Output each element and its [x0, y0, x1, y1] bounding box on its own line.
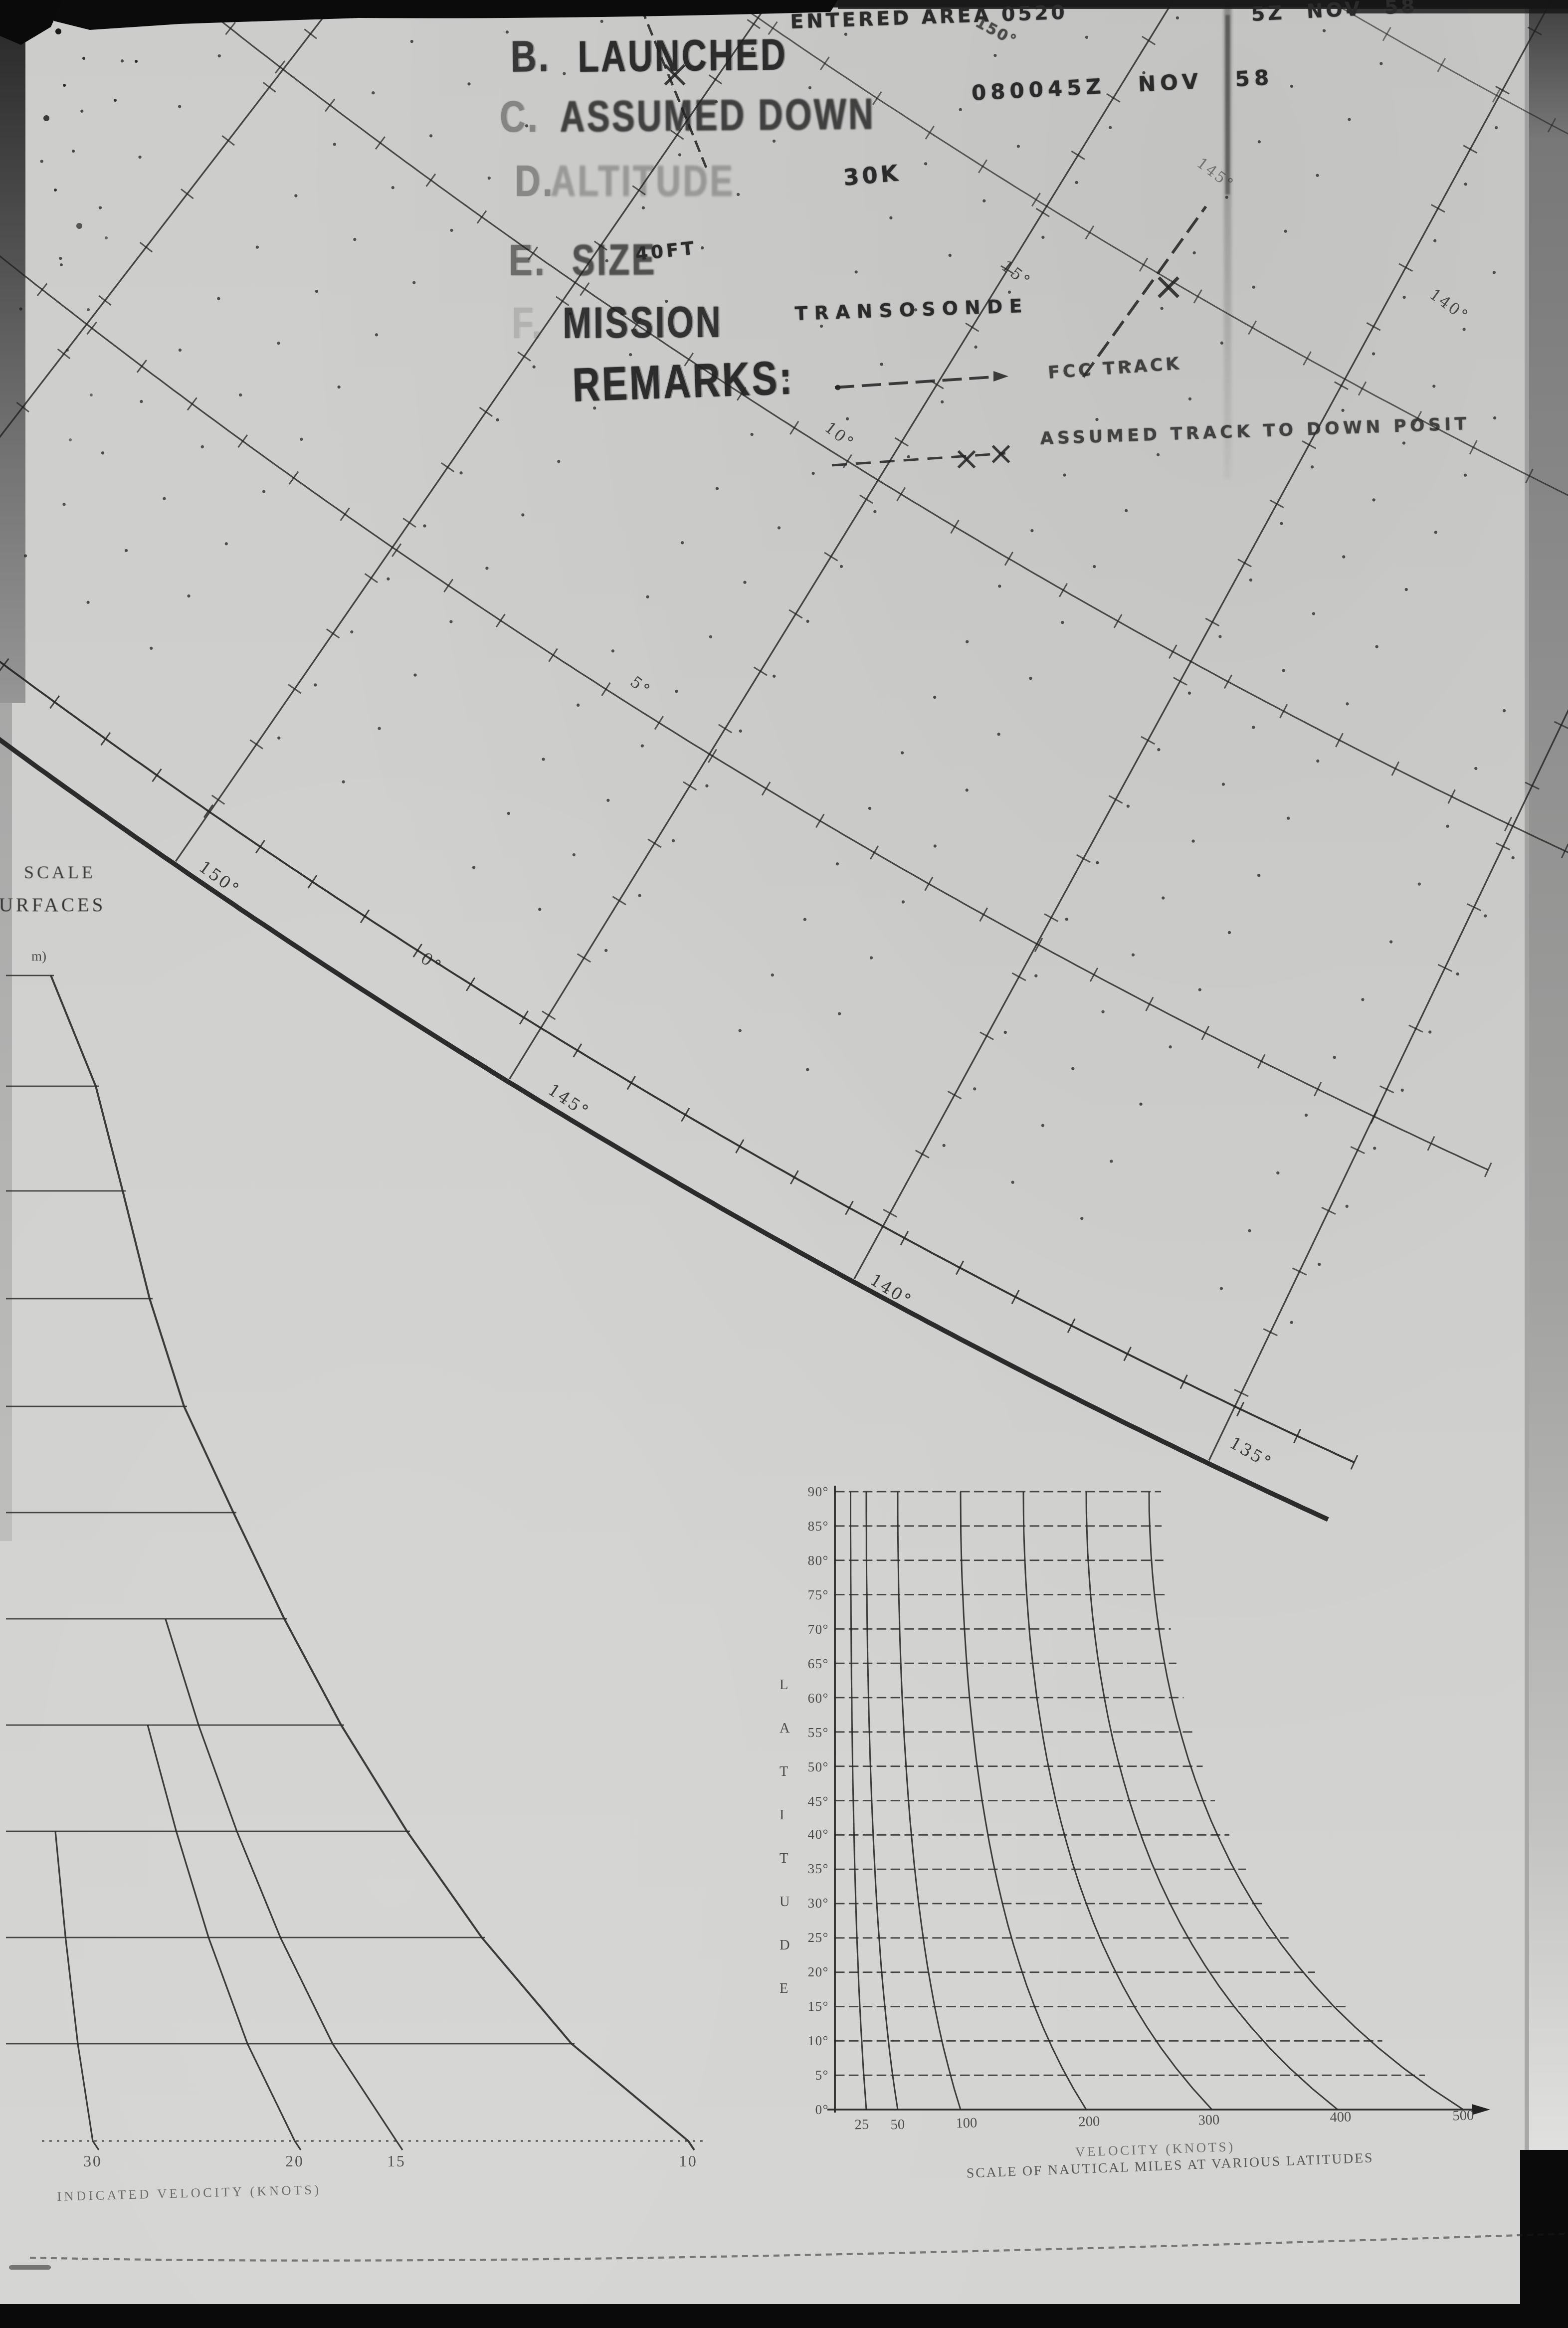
map-grid-dot — [1218, 635, 1221, 638]
map-grid-dot — [1418, 882, 1421, 885]
map-grid-dot — [423, 524, 426, 527]
map-grid-dot — [1402, 441, 1405, 444]
right-chart-ylabel-letter: L — [780, 1679, 788, 1694]
map-parallel-tick — [204, 805, 213, 818]
map-parallel-tick — [238, 435, 247, 447]
map-parallel-tick — [188, 397, 197, 410]
margin-text-scale: SCALE — [24, 862, 96, 884]
map-grid-dot — [806, 620, 809, 623]
map-grid-dot — [375, 333, 378, 336]
map-grid-dot — [1373, 1147, 1376, 1150]
map-parallel-tick — [655, 716, 663, 729]
map-grid-dot — [998, 584, 1001, 587]
stamp-assumed-down: ASSUMED DOWN — [560, 90, 875, 144]
map-grid-dot — [1432, 385, 1435, 388]
map-grid-dot — [353, 238, 356, 241]
map-parallel-tick — [256, 840, 265, 853]
map-parallel-tick — [520, 1011, 528, 1024]
map-meridian-tick — [1399, 264, 1412, 271]
map-grid-dot — [1258, 140, 1261, 143]
map-grid-dot — [1004, 1031, 1007, 1034]
map-grid-dot — [1110, 1160, 1113, 1163]
map-grid-dot — [1162, 896, 1165, 899]
map-grid-dot — [739, 1029, 742, 1032]
map-grid-dot — [1434, 531, 1437, 534]
map-meridian-tick — [1379, 1086, 1393, 1093]
map-grid-dot — [1284, 230, 1287, 233]
map-parallel-tick — [1505, 817, 1511, 831]
map-parallel-tick — [980, 908, 987, 921]
map-grid-dot — [40, 160, 43, 163]
map-grid-dot — [773, 675, 776, 678]
map-grid-dot — [638, 894, 641, 897]
map-meridian-tick — [1238, 559, 1251, 567]
right-chart-lat-label: 65° — [790, 1656, 829, 1671]
map-grid-dot — [472, 866, 475, 869]
map-grid-dot — [743, 581, 746, 583]
map-grid-dot — [1228, 931, 1231, 934]
map-parallel-tick — [1169, 645, 1176, 658]
map-grid-dot — [808, 86, 811, 89]
map-parallel-tick — [275, 61, 285, 73]
map-grid-dot — [488, 177, 491, 180]
map-grid-dot — [846, 417, 849, 420]
map-grid-dot — [778, 526, 781, 529]
left-chart-curve-v30 — [55, 1831, 99, 2150]
map-grid-dot — [294, 194, 297, 197]
paper-crease-line — [30, 2234, 1565, 2261]
map-parallel-tick — [1392, 762, 1399, 776]
map-grid-dot — [675, 690, 678, 693]
map-parallel-tick — [602, 683, 610, 696]
map-grid-dot — [1139, 1103, 1142, 1106]
map-meridian-tick — [966, 323, 979, 331]
right-chart-lat-label: 75° — [790, 1587, 829, 1602]
map-grid-dot — [1169, 1045, 1172, 1048]
map-grid-dot — [933, 696, 936, 699]
map-grid-dot — [1220, 1287, 1223, 1290]
map-grid-dot — [949, 254, 952, 257]
map-grid-dot — [101, 451, 104, 454]
map-parallel-tick — [951, 520, 959, 534]
map-meridian-tick — [1438, 965, 1452, 971]
map-parallel-tick — [845, 1201, 853, 1214]
map-meridian-tick — [1036, 208, 1050, 216]
map-meridian-tick — [1142, 36, 1156, 44]
right-chart-ylabel-letter: I — [780, 1809, 784, 1824]
map-parallel-tick — [361, 910, 369, 923]
map-meridian-tick — [263, 82, 276, 92]
map-grid-dot — [1252, 726, 1255, 729]
map-parallel-tick — [1359, 382, 1366, 395]
map-parallel-tick — [101, 733, 110, 745]
map-grid-dot — [611, 649, 614, 652]
right-chart-lat-label: 0° — [790, 2102, 829, 2117]
map-meridian-tick — [1174, 677, 1187, 685]
map-parallel-tick — [50, 696, 59, 708]
map-grid-dot — [563, 72, 566, 75]
map-grid-dot — [410, 40, 413, 43]
map-meridian-tick — [1012, 973, 1025, 980]
map-grid-dot — [838, 1012, 841, 1015]
map-meridian-line — [1209, 691, 1568, 1460]
map-grid-dot — [629, 353, 632, 356]
map-grid-dot — [1127, 804, 1130, 807]
map-grid-dot — [239, 393, 242, 396]
map-grid-dot — [1030, 529, 1033, 532]
right-chart-velocity-label: 200 — [1068, 2115, 1111, 2131]
left-chart-curve-v10 — [51, 975, 694, 2150]
map-grid-dot — [125, 549, 128, 552]
map-meridian-tick — [1322, 1207, 1336, 1214]
right-chart-lat-label: 85° — [790, 1519, 829, 1534]
map-grid-dot — [1348, 118, 1351, 121]
map-parallel-tick — [1124, 1347, 1131, 1361]
map-parallel-tick — [137, 360, 147, 373]
map-meridian-tick — [288, 685, 301, 694]
map-parallel-tick — [1090, 968, 1098, 982]
map-parallel-tick — [37, 283, 47, 296]
map-parallel-tick — [413, 944, 422, 957]
map-grid-dot — [1008, 291, 1011, 294]
legend-fcc-sample-arrow — [993, 371, 1008, 382]
map-grid-dot — [868, 807, 871, 810]
map-meridian-tick — [948, 1091, 961, 1099]
map-meridian-tick — [1409, 1025, 1423, 1032]
map-parallel-tick — [1280, 704, 1287, 718]
map-grid-dot — [450, 229, 453, 232]
map-meridian-tick — [789, 610, 802, 618]
right-chart-ylabel-letter: U — [780, 1896, 790, 1911]
map-meridian-tick — [1463, 146, 1477, 153]
legend-fcc-sample-line — [835, 377, 992, 388]
map-meridian-tick — [181, 189, 194, 198]
map-parallel-tick — [1005, 552, 1013, 566]
map-grid-dot — [646, 595, 649, 598]
map-grid-dot — [533, 365, 536, 368]
map-parallel-tick — [341, 508, 350, 521]
map-meridian-tick — [824, 553, 838, 561]
map-grid-dot — [716, 487, 719, 490]
map-meridian-tick — [578, 954, 591, 962]
right-chart-lat-label: 15° — [790, 1999, 829, 2014]
map-parallel-tick — [925, 877, 933, 891]
map-grid-dot — [924, 162, 927, 165]
map-grid-dot — [641, 744, 644, 747]
map-meridian-tick — [1467, 904, 1481, 910]
map-parallel-tick — [1194, 290, 1202, 303]
right-chart-velocity-label: 50 — [877, 2118, 919, 2134]
map-grid-dot — [225, 542, 228, 545]
map-parallel-tick — [1248, 321, 1256, 334]
map-grid-dot — [99, 206, 102, 209]
paper-crease-dash — [9, 2265, 51, 2270]
map-grid-dot — [217, 297, 220, 300]
map-meridian-tick — [1525, 782, 1539, 789]
right-chart-lat-label: 10° — [790, 2033, 829, 2048]
map-grid-dot — [966, 788, 969, 791]
stamp-mission: MISSION — [563, 298, 723, 351]
map-grid-dot — [1372, 498, 1375, 501]
map-grid-dot — [1503, 709, 1506, 712]
map-parallel-tick — [1303, 352, 1311, 365]
map-grid-dot — [140, 400, 143, 403]
map-parallel-tick — [1140, 258, 1148, 271]
stamp-d-prefix: D. — [515, 157, 555, 208]
map-grid-dot — [459, 471, 462, 474]
map-grid-dot — [467, 82, 470, 85]
map-parallel-tick — [1562, 844, 1568, 858]
map-meridian-tick — [403, 518, 416, 527]
map-grid-dot — [1318, 1263, 1321, 1266]
map-grid-dot — [1160, 307, 1163, 310]
map-grid-dot — [1379, 62, 1382, 65]
stamp-launched: LAUNCHED — [578, 31, 787, 84]
map-grid-dot — [1341, 409, 1344, 412]
map-grid-dot — [811, 472, 814, 475]
right-chart-lat-label: 5° — [790, 2068, 829, 2083]
map-grid-dot — [1287, 816, 1290, 819]
map-parallel-tick — [1180, 1375, 1187, 1389]
map-grid-dot — [943, 1144, 946, 1147]
left-chart-curve-v15 — [166, 1619, 402, 2150]
right-chart-velocity-label: 500 — [1442, 2109, 1485, 2125]
map-parallel-tick — [1314, 1082, 1321, 1096]
scan-corner-blob — [0, 0, 63, 45]
map-grid-dot — [201, 445, 204, 448]
map-grid-dot — [973, 1087, 976, 1090]
assumed-track-segment — [1083, 206, 1206, 377]
right-chart-ylabel-letter: T — [780, 1765, 788, 1780]
map-grid-dot — [1342, 555, 1345, 558]
map-meridian-tick — [1367, 323, 1380, 330]
map-grid-dot — [1446, 825, 1449, 828]
map-meridian-tick — [304, 29, 317, 38]
map-grid-dot — [1433, 239, 1436, 242]
map-grid-dot — [506, 30, 509, 33]
map-grid-dot — [993, 54, 996, 57]
map-grid-dot — [1402, 296, 1405, 299]
map-grid-dot — [521, 513, 524, 516]
map-grid-dot — [218, 54, 221, 57]
right-chart-lat-label: 70° — [790, 1621, 829, 1636]
map-meridian-tick — [916, 1151, 929, 1158]
right-chart-velocity-label: 400 — [1320, 2111, 1362, 2127]
right-chart-lat-label: 60° — [790, 1690, 829, 1705]
right-chart-lat-label: 45° — [790, 1793, 829, 1808]
map-grid-dot — [1075, 181, 1078, 184]
map-parallel-tick — [708, 749, 716, 763]
map-grid-dot — [350, 630, 353, 633]
map-grid-dot — [902, 900, 905, 903]
map-grid-dot — [1484, 914, 1487, 917]
stamp-b-prefix: B. — [510, 32, 551, 84]
map-grid-dot — [24, 554, 27, 557]
map-grid-dot — [1101, 1010, 1104, 1013]
map-parallel-tick — [1114, 614, 1122, 628]
map-grid-dot — [1312, 612, 1315, 615]
map-grid-dot — [121, 59, 124, 62]
map-grid-dot — [750, 433, 753, 436]
map-grid-dot — [1041, 1124, 1044, 1127]
map-grid-dot — [836, 862, 839, 865]
map-grid-dot — [1061, 621, 1064, 624]
margin-text-fragment: m) — [31, 949, 46, 964]
map-parallel-tick — [496, 614, 505, 627]
right-chart-lat-label: 35° — [790, 1862, 829, 1877]
map-grid-dot — [1361, 998, 1364, 1001]
map-parallel-tick — [790, 1170, 798, 1184]
map-grid-dot — [1512, 856, 1515, 859]
map-meridian-tick — [58, 349, 70, 359]
map-grid-dot — [1096, 861, 1099, 864]
map-parallel-tick — [225, 22, 235, 35]
map-meridian-tick — [1431, 204, 1445, 212]
map-grid-dot — [413, 673, 416, 676]
map-grid-dot — [701, 246, 704, 249]
map-grid-dot — [187, 594, 190, 597]
map-grid-dot — [542, 758, 545, 761]
stamp-remarks: REMARKS: — [572, 351, 795, 413]
map-grid-dot — [803, 918, 806, 921]
map-grid-dot — [1198, 988, 1201, 991]
map-grid-dot — [1282, 669, 1285, 672]
map-parallel-tick — [816, 814, 824, 827]
map-grid-dot — [974, 346, 977, 349]
map-meridian-tick — [1077, 855, 1090, 862]
map-parallel-tick — [790, 421, 798, 434]
right-chart-lat-label: 30° — [790, 1896, 829, 1911]
map-meridian-tick — [1302, 441, 1316, 448]
right-chart-lat-label: 50° — [790, 1759, 829, 1774]
map-parallel-tick — [627, 1076, 635, 1090]
map-parallel-tick — [289, 472, 298, 484]
map-parallel-tick — [736, 1140, 744, 1153]
map-meridian-tick — [16, 402, 29, 412]
map-parallel-tick — [762, 782, 770, 795]
map-parallel-tick — [843, 455, 851, 468]
map-grid-dot — [1280, 522, 1283, 525]
map-grid-dot — [557, 460, 560, 463]
map-grid-dot — [771, 973, 774, 976]
map-grid-dot — [1011, 1181, 1014, 1184]
map-meridian-tick — [250, 740, 263, 749]
stamp-f-prefix: F. — [512, 299, 544, 351]
map-grid-dot — [1389, 940, 1392, 943]
map-grid-dot — [150, 647, 153, 650]
map-meridian-tick — [1293, 1268, 1307, 1275]
map-grid-dot — [315, 290, 318, 293]
map-grid-dot — [256, 245, 259, 248]
map-grid-dot — [1085, 36, 1088, 39]
map-parallel-tick — [1012, 1290, 1019, 1304]
map-meridian-tick — [327, 629, 340, 638]
map-grid-dot — [1464, 183, 1467, 186]
map-grid-dot — [982, 199, 985, 202]
right-chart-lat-label: 80° — [790, 1553, 829, 1568]
map-grid-dot — [1176, 16, 1179, 19]
map-grid-dot — [86, 601, 89, 604]
map-grid-dot — [1474, 767, 1477, 770]
map-grid-dot — [1464, 474, 1467, 477]
map-parallel-tick — [1146, 997, 1153, 1011]
map-grid-dot — [1290, 1321, 1293, 1324]
map-grid-dot — [342, 780, 345, 783]
map-meridian-tick — [480, 407, 493, 416]
map-grid-dot — [19, 307, 22, 310]
map-grid-dot — [1316, 174, 1319, 177]
left-chart-tick-label: 30 — [75, 2154, 111, 2171]
map-grid-dot — [604, 949, 607, 952]
map-meridian-tick — [441, 463, 454, 472]
legend-fcc-sample-dot — [835, 385, 841, 390]
map-parallel-tick — [1485, 1163, 1491, 1177]
map-grid-dot — [277, 737, 280, 740]
right-chart-ylabel-letter: D — [780, 1939, 790, 1954]
map-meridian-tick — [1071, 151, 1085, 159]
left-chart-tick-label: 15 — [379, 2154, 414, 2171]
map-meridian-line — [0, 0, 343, 449]
map-grid-dot — [1248, 1229, 1251, 1232]
map-grid-dot — [1375, 645, 1378, 648]
map-grid-dot — [1493, 271, 1496, 274]
left-chart-tick-label: 20 — [277, 2154, 313, 2171]
map-meridian-tick — [365, 574, 378, 582]
map-grid-dot — [672, 839, 675, 842]
legend-assumed-sample-line — [832, 453, 1005, 465]
map-grid-dot — [138, 156, 141, 159]
right-chart-velocity-label: 100 — [946, 2117, 988, 2133]
map-grid-dot — [412, 281, 415, 284]
map-parallel-tick — [444, 579, 452, 592]
map-grid-dot — [1401, 1089, 1404, 1092]
map-grid-dot — [678, 153, 681, 156]
right-chart-lat-label: 25° — [790, 1931, 829, 1945]
map-grid-dot — [1193, 251, 1196, 254]
map-grid-dot — [337, 386, 340, 388]
map-grid-dot — [485, 567, 488, 570]
map-grid-dot — [1034, 974, 1037, 977]
map-grid-dot — [966, 640, 969, 643]
map-grid-dot — [1333, 1056, 1336, 1059]
scan-top-band-chunk — [54, 0, 838, 30]
map-parallel-tick — [1032, 193, 1040, 206]
map-grid-dot — [820, 325, 823, 328]
map-grid-dot — [1080, 1217, 1083, 1220]
map-parallel-tick — [0, 659, 8, 671]
map-grid-dot — [573, 853, 576, 856]
map-grid-dot — [392, 186, 394, 189]
map-parallel-tick — [1336, 733, 1343, 747]
map-parallel-tick — [1059, 583, 1067, 597]
map-parallel-tick — [1224, 675, 1232, 688]
right-chart-lat-label: 90° — [790, 1484, 829, 1499]
map-grid-dot — [1495, 126, 1498, 129]
scanned-chart-page: B. LAUNCHED C. ASSUMED DOWN D. ALTITUDE … — [0, 0, 1568, 2328]
map-grid-dot — [1125, 509, 1128, 512]
right-chart-velocity-label: 300 — [1188, 2113, 1230, 2129]
map-grid-dot — [997, 733, 1000, 736]
map-grid-dot — [314, 683, 317, 686]
map-grid-dot — [1405, 588, 1408, 591]
map-grid-dot — [333, 143, 336, 146]
map-grid-dot — [840, 565, 843, 568]
right-chart-lat-label: 55° — [790, 1725, 829, 1740]
map-parallel-tick — [979, 160, 987, 173]
map-meridian-tick — [212, 795, 225, 804]
map-meridian-tick — [719, 725, 732, 733]
map-grid-dot — [277, 342, 280, 345]
